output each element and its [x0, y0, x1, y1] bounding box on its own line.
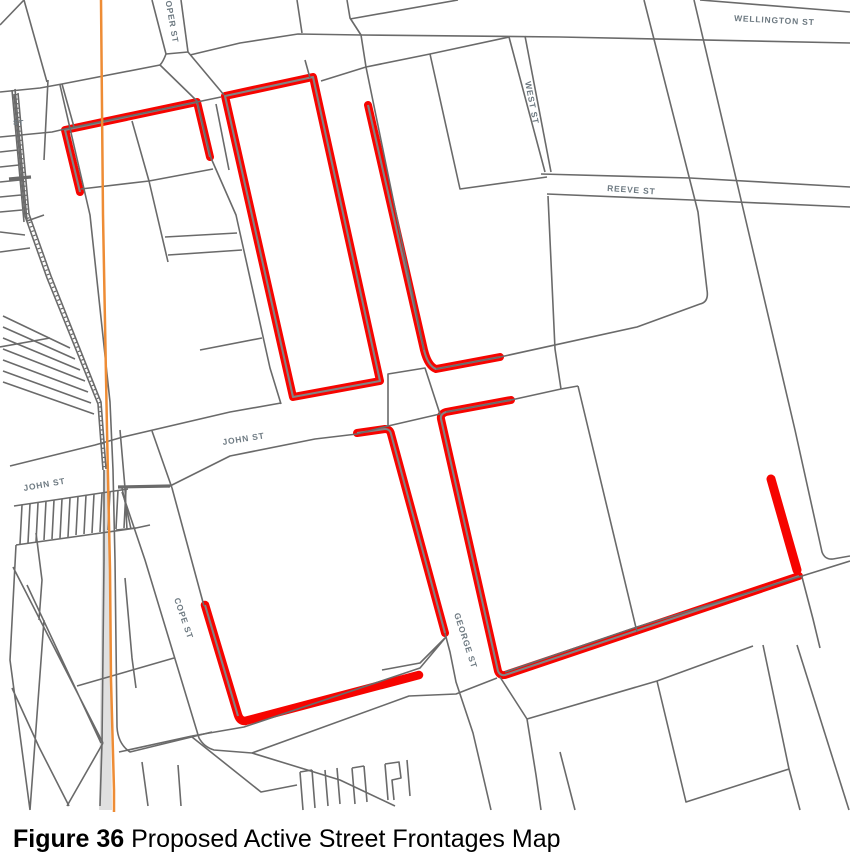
svg-text:ST: ST: [13, 118, 24, 127]
svg-text:COPE ST: COPE ST: [172, 596, 195, 640]
svg-text:COOPER ST: COOPER ST: [161, 0, 181, 44]
svg-text:JOHN ST: JOHN ST: [222, 430, 265, 447]
svg-text:JOHN ST: JOHN ST: [23, 476, 67, 493]
svg-text:REEVE ST: REEVE ST: [607, 183, 656, 196]
svg-text:GEORGE ST: GEORGE ST: [452, 612, 479, 670]
svg-text:WELLINGTON ST: WELLINGTON ST: [734, 13, 815, 27]
